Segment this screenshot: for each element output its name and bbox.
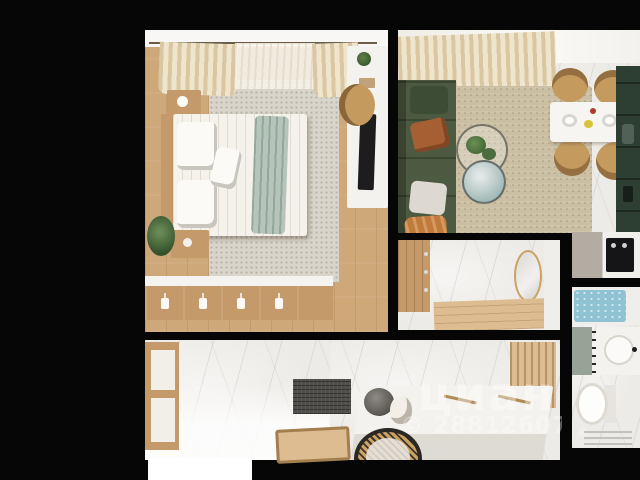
desk-plant — [357, 52, 371, 66]
kitchen-cabinets — [616, 66, 640, 233]
shelf-niche — [151, 398, 175, 442]
pillow — [177, 180, 217, 228]
laundry-closet — [572, 232, 640, 278]
bench-groove — [444, 394, 477, 404]
bathroom — [572, 287, 640, 448]
bedroom-plant — [147, 216, 175, 256]
appliance-knob — [611, 243, 616, 248]
kitchen-hob — [623, 186, 633, 202]
cat — [390, 396, 412, 424]
living-room — [398, 30, 640, 233]
entry-hall — [398, 240, 560, 330]
plate — [602, 114, 617, 127]
nightstand — [167, 90, 201, 114]
hall-wall — [544, 240, 560, 330]
dresser-handle — [275, 298, 283, 309]
bench-groove — [498, 394, 531, 404]
pillow — [177, 122, 217, 170]
coat-hook — [424, 288, 428, 292]
green-sofa — [398, 80, 456, 233]
oval-mirror — [514, 250, 542, 302]
appliance-knob — [622, 243, 627, 248]
corridor-shelf — [145, 342, 179, 450]
fruit-bowl — [584, 120, 593, 128]
doorway-light — [148, 458, 252, 480]
sheer-curtain — [235, 43, 315, 89]
bathroom-cabinet — [572, 327, 592, 375]
table-lamp — [177, 96, 188, 107]
hallway — [330, 340, 560, 460]
dresser-top — [145, 276, 333, 286]
bedroom — [145, 30, 388, 332]
round-sink — [604, 335, 634, 365]
desk-chair — [339, 84, 375, 126]
plate — [562, 114, 577, 127]
apartment-floorplan-render: циан © 28812607 — [0, 0, 640, 480]
bedroom-dresser — [145, 276, 333, 320]
coat-hook — [424, 252, 428, 256]
nightstand — [171, 230, 209, 258]
vase — [183, 238, 192, 247]
dresser-handle — [161, 298, 169, 309]
fruit — [590, 108, 596, 114]
side-table — [462, 160, 506, 204]
dining-chair — [552, 68, 588, 102]
faucet — [632, 347, 637, 352]
sofa-cushion — [410, 86, 448, 114]
door-mat — [293, 379, 351, 414]
toilet — [576, 381, 616, 427]
rust-pillow — [409, 117, 450, 154]
dresser-handle — [237, 298, 245, 309]
table-plant — [482, 148, 496, 160]
wood-tray — [275, 426, 351, 464]
sage-throw-blanket — [251, 115, 289, 234]
desk-console — [347, 46, 388, 208]
curtain — [158, 42, 238, 97]
wood-floor-inlay — [434, 298, 557, 330]
hall-wardrobe — [398, 240, 430, 312]
orange-throw — [404, 215, 450, 233]
towel-ladder — [584, 429, 632, 445]
white-pillow — [408, 180, 447, 216]
coat-hook — [424, 270, 428, 274]
washing-machine — [606, 238, 634, 272]
dining-chair — [554, 140, 590, 176]
vanity-counter — [596, 327, 640, 375]
pouf-top — [366, 438, 410, 460]
double-bed — [161, 114, 307, 236]
toilet-bowl — [576, 383, 608, 425]
shelf-niche — [151, 350, 175, 390]
kitchen-sink — [622, 124, 634, 144]
dresser-handle — [199, 298, 207, 309]
bathtub-water — [574, 290, 626, 322]
